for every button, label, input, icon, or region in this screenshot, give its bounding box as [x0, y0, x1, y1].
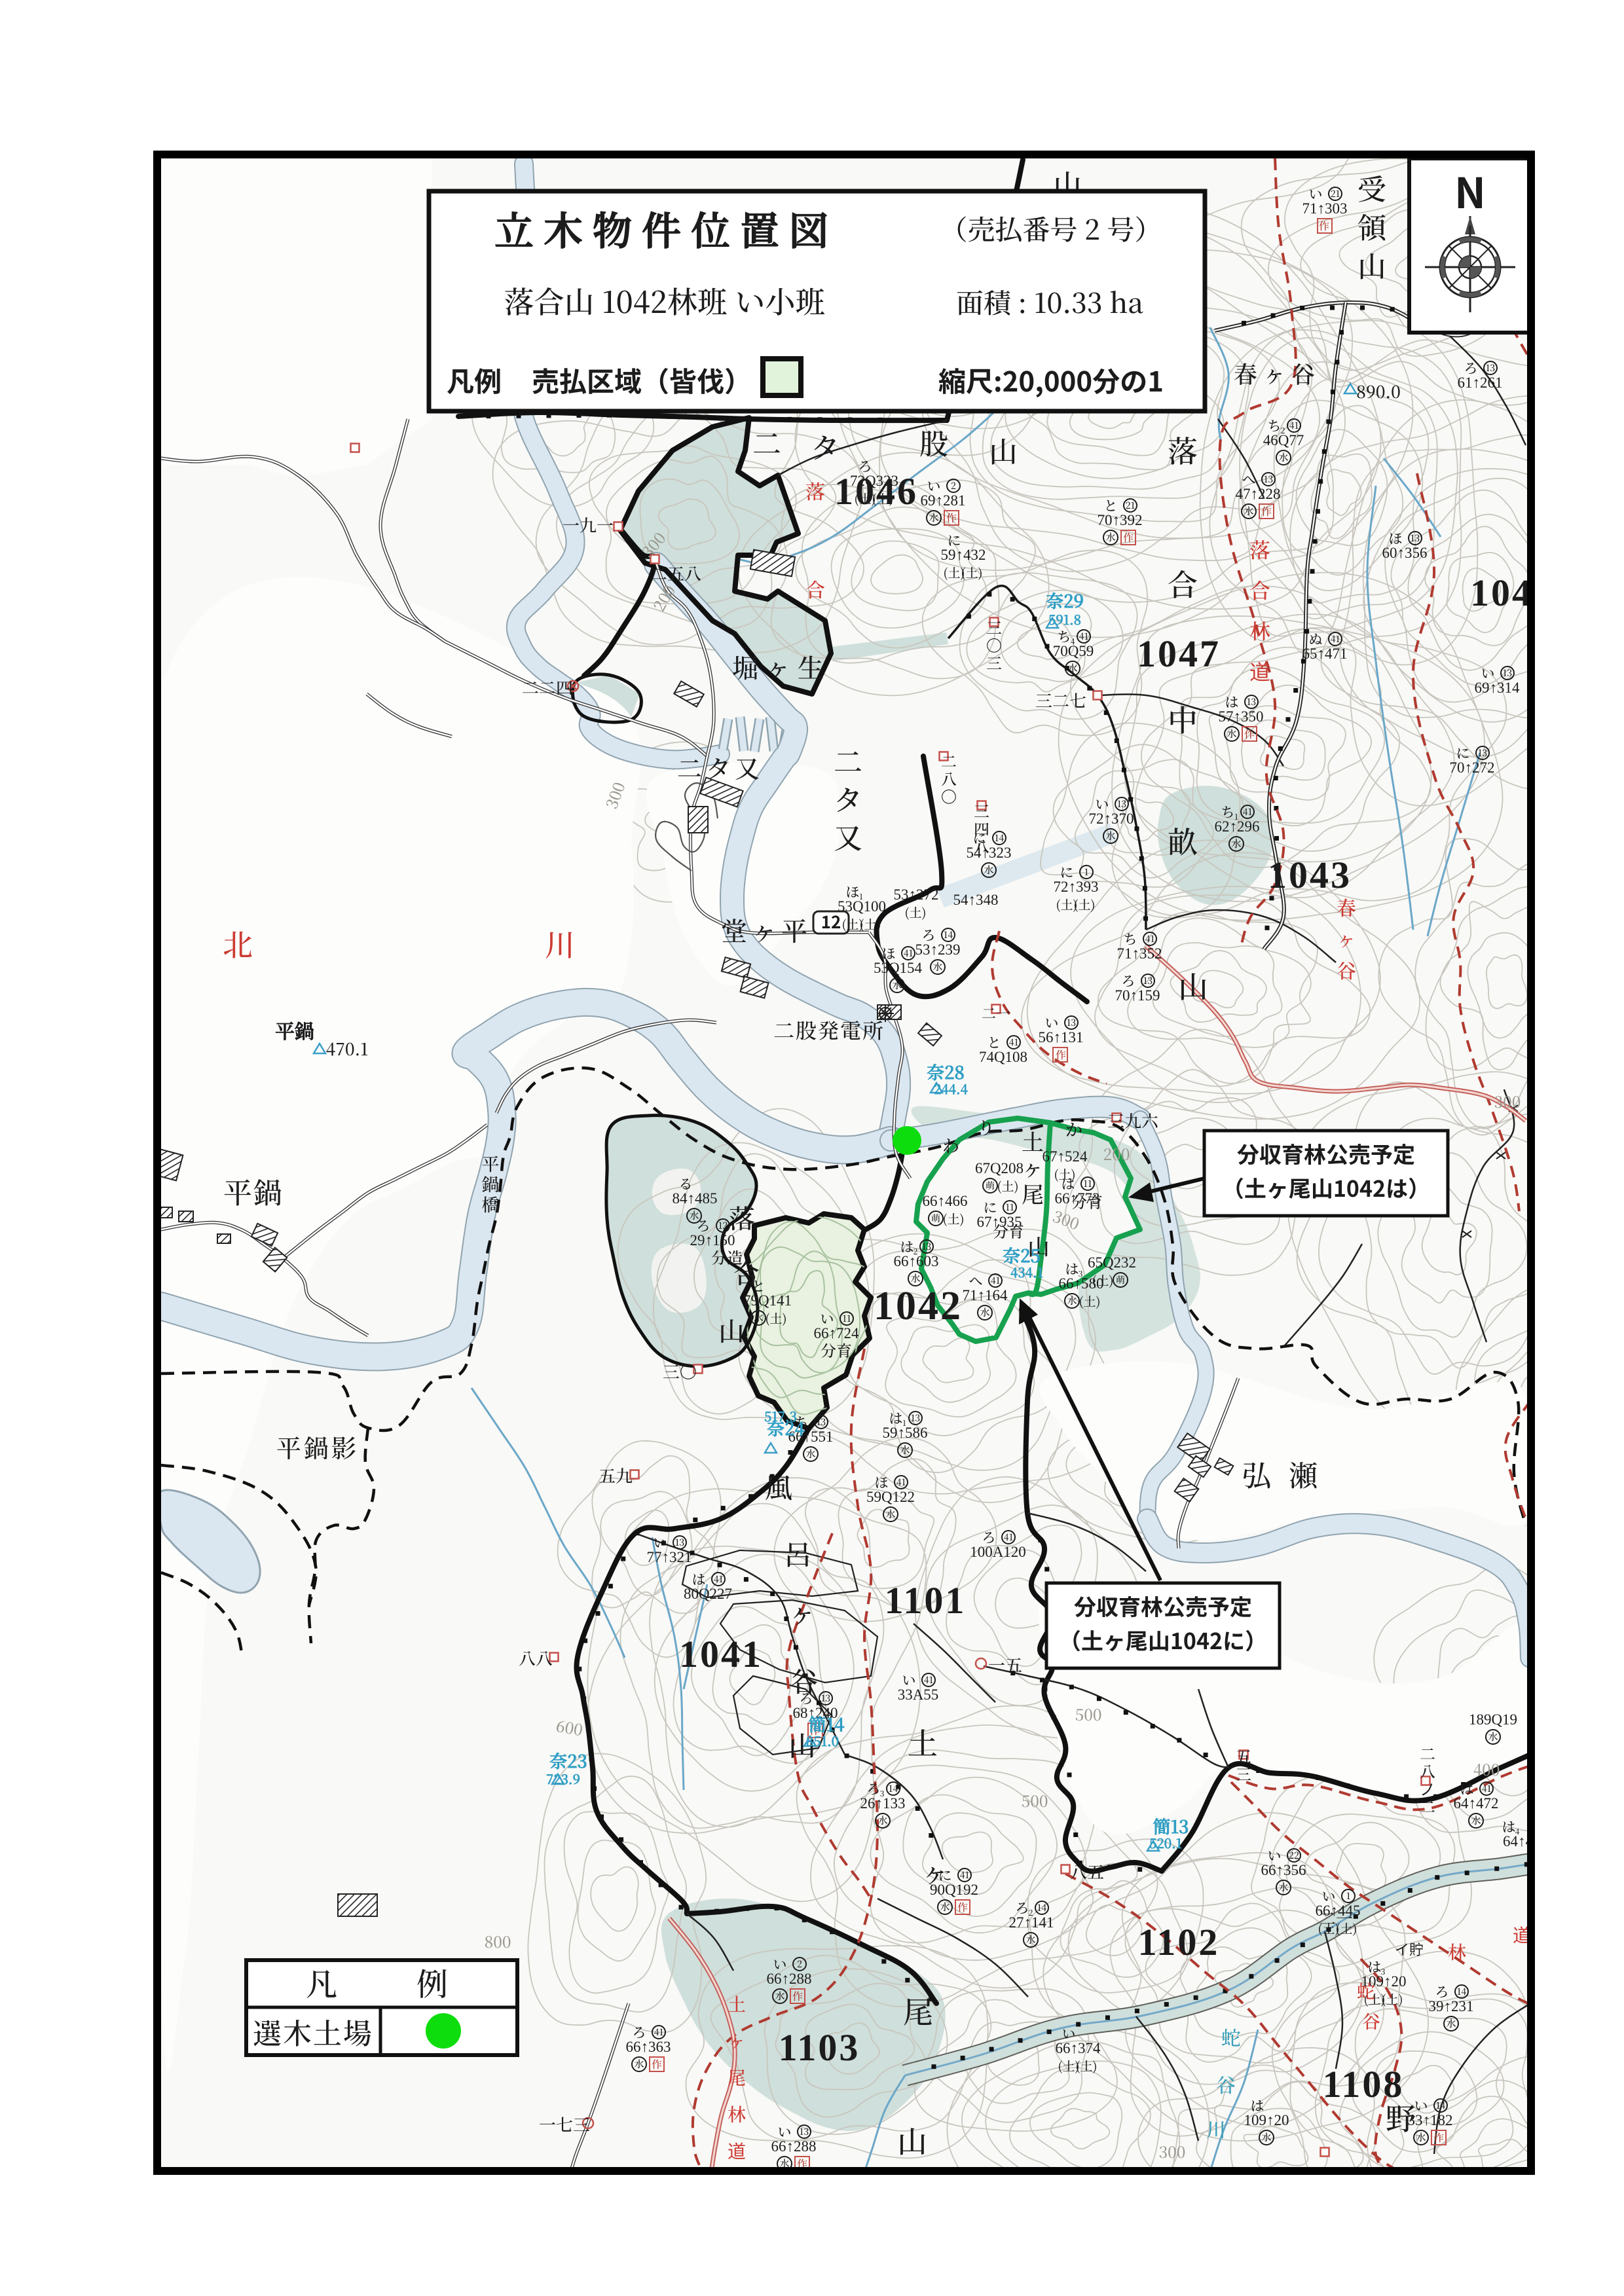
svg-text:か: か: [1065, 1117, 1082, 1141]
svg-text:立 木 物 件 位 置 図: 立 木 物 件 位 置 図: [494, 200, 828, 257]
svg-text:分育: 分育: [1071, 1190, 1103, 1212]
svg-text:71↑352: 71↑352: [1117, 945, 1162, 962]
svg-text:(土): (土): [765, 1309, 786, 1327]
svg-text:作: 作: [1244, 726, 1255, 741]
svg-text:41: 41: [1145, 932, 1155, 945]
svg-text:21: 21: [1126, 499, 1135, 512]
svg-text:1042: 1042: [874, 1284, 963, 1328]
svg-text:一九一: 一九一: [563, 513, 614, 537]
svg-text:三: 三: [1236, 1762, 1251, 1785]
svg-text:14: 14: [995, 831, 1005, 845]
svg-text:土: 土: [908, 1721, 938, 1764]
svg-text:谷: 谷: [1362, 2008, 1380, 2034]
svg-text:72Q323: 72Q323: [850, 473, 898, 489]
svg-text:水: 水: [892, 978, 902, 992]
svg-text:41: 41: [1004, 1531, 1014, 1544]
svg-text:売払区域（皆伐）: 売払区域（皆伐）: [532, 360, 752, 400]
svg-text:500: 500: [1075, 1702, 1102, 1725]
svg-text:イ貯: イ貯: [1395, 1939, 1424, 1959]
svg-text:春ヶ谷: 春ヶ谷: [1234, 357, 1320, 390]
svg-text:（土ヶ尾山1042に）: （土ヶ尾山1042に）: [1059, 1624, 1267, 1656]
svg-text:13: 13: [1503, 666, 1513, 680]
svg-text:〇: 〇: [941, 784, 957, 807]
svg-text:61↑261: 61↑261: [1458, 374, 1503, 391]
svg-text:66↑603: 66↑603: [894, 1253, 939, 1269]
svg-text:189Q19: 189Q19: [1469, 1711, 1517, 1728]
svg-text:65Q232: 65Q232: [1088, 1254, 1136, 1271]
svg-text:水: 水: [1278, 1880, 1288, 1894]
svg-text:三二七: 三二七: [1035, 688, 1086, 712]
svg-text:71↑303: 71↑303: [1302, 200, 1348, 217]
svg-text:平鍋影: 平鍋影: [276, 1429, 359, 1465]
svg-text:水: 水: [984, 863, 993, 877]
svg-text:山: 山: [989, 429, 1018, 471]
svg-text:三〇: 三〇: [663, 1359, 697, 1383]
svg-text:46Q77: 46Q77: [1263, 432, 1304, 448]
svg-text:13: 13: [1117, 797, 1127, 811]
svg-text:水: 水: [932, 960, 942, 974]
svg-text:水: 水: [775, 1989, 784, 2003]
svg-text:水: 水: [900, 1443, 910, 1457]
svg-text:(土): (土): [872, 490, 893, 507]
svg-text:53↑272: 53↑272: [894, 886, 939, 903]
svg-text:13: 13: [1264, 473, 1274, 486]
svg-text:川: 川: [1206, 2114, 1226, 2143]
svg-text:り: り: [978, 1115, 995, 1139]
svg-text:尾: 尾: [1022, 1177, 1044, 1209]
svg-text:13: 13: [1486, 361, 1496, 374]
svg-text:60↑356: 60↑356: [1382, 545, 1428, 561]
svg-text:作: 作: [1261, 503, 1272, 519]
svg-text:二: 二: [752, 421, 781, 463]
svg-text:14: 14: [1457, 1985, 1467, 1998]
svg-text:分造: 分造: [711, 1245, 743, 1268]
svg-text:谷: 谷: [1337, 955, 1356, 984]
svg-text:33↑182: 33↑182: [1408, 2112, 1453, 2128]
svg-text:1: 1: [1346, 1889, 1351, 1903]
svg-text:萌: 萌: [1116, 1273, 1125, 1286]
svg-text:1047: 1047: [1137, 632, 1221, 675]
svg-text:41: 41: [1331, 632, 1340, 646]
svg-text:41: 41: [896, 1476, 906, 1489]
svg-text:作: 作: [1319, 218, 1329, 233]
svg-text:1041: 1041: [679, 1633, 763, 1675]
svg-text:41: 41: [654, 2026, 664, 2039]
svg-text:作: 作: [1433, 2130, 1444, 2145]
svg-text:平: 平: [223, 1170, 252, 1212]
svg-text:作: 作: [1056, 1047, 1066, 1062]
svg-text:41: 41: [1079, 630, 1089, 643]
svg-text:領: 領: [1357, 205, 1387, 247]
svg-text:14: 14: [1436, 2099, 1446, 2112]
svg-text:水: 水: [1067, 661, 1077, 675]
svg-text:13: 13: [1478, 746, 1488, 759]
svg-text:2: 2: [951, 479, 956, 492]
svg-text:二: 二: [834, 739, 862, 781]
svg-text:13: 13: [1143, 974, 1153, 987]
svg-text:水: 水: [1067, 1294, 1077, 1307]
svg-text:13: 13: [821, 1692, 831, 1705]
svg-text:風: 風: [765, 1467, 792, 1506]
svg-text:三: 三: [986, 651, 1002, 674]
svg-text:合: 合: [1168, 562, 1198, 605]
svg-text:66↑363: 66↑363: [626, 2039, 671, 2055]
svg-text:春: 春: [1337, 892, 1356, 921]
svg-text:39↑231: 39↑231: [1429, 1998, 1474, 2014]
svg-text:二股発電所: 二股発電所: [773, 1015, 885, 1045]
svg-text:41: 41: [991, 1274, 1001, 1287]
svg-text:(土): (土): [997, 1177, 1018, 1195]
svg-text:例: 例: [416, 1959, 448, 2005]
svg-text:90Q192: 90Q192: [930, 1882, 978, 1898]
svg-text:水: 水: [877, 1813, 887, 1827]
svg-text:水: 水: [634, 2057, 644, 2071]
svg-text:851.0: 851.0: [806, 1731, 839, 1750]
svg-text:ヶ: ヶ: [788, 1593, 816, 1632]
svg-text:77↑321: 77↑321: [647, 1549, 692, 1565]
svg-text:(土): (土): [942, 1210, 964, 1228]
svg-text:66↑580: 66↑580: [1059, 1275, 1104, 1292]
svg-text:66↑445: 66↑445: [1316, 1903, 1361, 1919]
svg-text:二: 二: [1420, 1795, 1435, 1817]
svg-text:(土): (土): [1079, 1292, 1100, 1310]
svg-text:林: 林: [1249, 615, 1270, 646]
svg-text:59↑432: 59↑432: [941, 547, 986, 563]
svg-text:（売払番号 2 号）: （売払番号 2 号）: [940, 209, 1162, 248]
svg-text:N: N: [1454, 160, 1486, 221]
svg-text:土: 土: [728, 1991, 746, 2017]
svg-text:林: 林: [728, 2101, 746, 2127]
svg-text:三九六: 三九六: [1107, 1108, 1159, 1133]
svg-text:北: 北: [223, 922, 253, 965]
svg-text:13: 13: [911, 1412, 921, 1425]
svg-text:14: 14: [889, 1782, 898, 1795]
svg-text:1101: 1101: [885, 1579, 967, 1622]
svg-text:水: 水: [1025, 1933, 1035, 1946]
svg-text:200: 200: [1103, 1142, 1130, 1165]
svg-text:53Q154: 53Q154: [874, 960, 923, 976]
svg-text:1: 1: [1084, 866, 1089, 879]
svg-text:作: 作: [792, 1988, 803, 2003]
svg-text:水: 水: [1105, 829, 1115, 843]
svg-text:落: 落: [1249, 534, 1270, 564]
svg-text:道: 道: [1249, 656, 1270, 686]
svg-text:水: 水: [1261, 2130, 1271, 2144]
svg-text:470.1: 470.1: [326, 1036, 369, 1061]
svg-text:13: 13: [800, 2125, 809, 2138]
svg-text:1043: 1043: [1268, 854, 1352, 896]
svg-text:66↑374: 66↑374: [1056, 2040, 1101, 2056]
svg-text:水: 水: [885, 1507, 895, 1521]
svg-text:合: 合: [1249, 575, 1270, 605]
svg-text:22: 22: [1289, 1849, 1299, 1862]
svg-text:水: 水: [1416, 2130, 1426, 2144]
svg-text:ヶ: ヶ: [1337, 924, 1356, 953]
svg-text:400: 400: [1473, 1757, 1500, 1780]
svg-text:41: 41: [1289, 419, 1299, 432]
svg-text:作: 作: [1123, 530, 1134, 545]
svg-text:70Q59: 70Q59: [1053, 643, 1094, 659]
svg-text:71↑164: 71↑164: [963, 1287, 1008, 1303]
svg-text:谷: 谷: [1216, 2069, 1236, 2098]
svg-text:723.9: 723.9: [546, 1769, 580, 1788]
svg-text:41: 41: [960, 1868, 970, 1882]
svg-text:作: 作: [946, 510, 957, 525]
svg-text:74Q108: 74Q108: [979, 1049, 1027, 1065]
svg-text:鍋: 鍋: [253, 1170, 282, 1212]
svg-text:萌: 萌: [931, 1212, 940, 1225]
svg-text:水: 水: [1278, 450, 1288, 464]
svg-text:水: 水: [753, 1311, 763, 1324]
svg-text:五九: 五九: [599, 1463, 633, 1487]
svg-text:80Q227: 80Q227: [684, 1586, 732, 1602]
svg-text:水: 水: [1231, 837, 1241, 850]
svg-text:水: 水: [1446, 2016, 1456, 2030]
svg-text:591.8: 591.8: [1048, 610, 1081, 629]
svg-text:11: 11: [1083, 1177, 1092, 1190]
svg-text:橋: 橋: [482, 1191, 500, 1216]
svg-text:70↑159: 70↑159: [1115, 987, 1160, 1004]
svg-text:65↑471: 65↑471: [1302, 646, 1348, 662]
svg-text:54↑323: 54↑323: [967, 845, 1012, 861]
svg-text:タ: タ: [834, 777, 862, 819]
svg-text:水: 水: [805, 1447, 815, 1461]
svg-text:(土): (土): [859, 915, 881, 933]
svg-text:72↑393: 72↑393: [1054, 879, 1099, 895]
svg-text:434.1: 434.1: [1010, 1262, 1043, 1281]
svg-text:13: 13: [1247, 695, 1257, 708]
svg-text:13: 13: [817, 1415, 826, 1429]
svg-text:落: 落: [729, 1199, 755, 1236]
svg-text:(土): (土): [1073, 896, 1095, 913]
svg-text:山: 山: [1357, 244, 1386, 285]
svg-text:41: 41: [1243, 805, 1253, 818]
svg-text:瀬: 瀬: [1289, 1453, 1319, 1495]
svg-text:凡例: 凡例: [447, 360, 502, 400]
svg-text:70↑272: 70↑272: [1450, 759, 1495, 776]
svg-text:（土ヶ尾山1042は）: （土ヶ尾山1042は）: [1222, 1171, 1430, 1203]
svg-text:13: 13: [1067, 1016, 1077, 1029]
svg-text:分収育林公売予定: 分収育林公売予定: [1074, 1590, 1252, 1622]
svg-text:27↑141: 27↑141: [1009, 1914, 1054, 1931]
svg-text:落合山 1042林班 い小班: 落合山 1042林班 い小班: [504, 279, 826, 322]
svg-text:69↑281: 69↑281: [921, 492, 966, 509]
svg-text:道: 道: [728, 2138, 746, 2164]
svg-text:57↑350: 57↑350: [1219, 708, 1264, 725]
svg-text:70↑392: 70↑392: [1098, 512, 1143, 528]
svg-text:萌: 萌: [986, 1179, 995, 1192]
svg-text:890.0: 890.0: [1356, 379, 1401, 403]
svg-text:蛇: 蛇: [1221, 2022, 1241, 2051]
svg-text:(土): (土): [961, 564, 982, 581]
svg-text:平鍋: 平鍋: [275, 1015, 314, 1044]
svg-text:中: 中: [1168, 697, 1198, 740]
svg-text:59↑586: 59↑586: [883, 1425, 928, 1441]
svg-text:300: 300: [1494, 1089, 1521, 1112]
svg-text:ヶ: ヶ: [728, 2028, 746, 2054]
svg-text:林: 林: [1448, 1939, 1466, 1965]
svg-text:300: 300: [1159, 2140, 1186, 2162]
svg-text:59Q122: 59Q122: [866, 1489, 915, 1505]
svg-text:517.3: 517.3: [764, 1406, 797, 1425]
svg-text:54↑348: 54↑348: [953, 892, 999, 908]
svg-text:64↑472: 64↑472: [1454, 1795, 1499, 1812]
svg-text:股: 股: [919, 421, 948, 463]
svg-text:凡: 凡: [306, 1959, 337, 2005]
svg-text:二一: 二一: [982, 1003, 1010, 1023]
svg-text:呂: 呂: [784, 1534, 811, 1573]
svg-text:800: 800: [485, 1929, 511, 1952]
svg-text:41: 41: [904, 947, 913, 960]
svg-text:落: 落: [1168, 428, 1198, 471]
svg-text:水: 水: [980, 1305, 989, 1319]
svg-text:水: 水: [910, 1271, 920, 1285]
svg-text:作: 作: [652, 2056, 662, 2071]
svg-text:一五: 一五: [988, 1652, 1022, 1677]
svg-text:67Q208: 67Q208: [975, 1160, 1024, 1176]
svg-text:21: 21: [1331, 187, 1340, 200]
svg-text:11: 11: [842, 1312, 851, 1325]
svg-text:100A120: 100A120: [970, 1544, 1026, 1560]
svg-text:面積 : 10.33 ha: 面積 : 10.33 ha: [956, 282, 1143, 321]
svg-text:分収育林公売予定: 分収育林公売予定: [1237, 1137, 1415, 1169]
svg-text:水: 水: [1105, 530, 1115, 544]
svg-text:104: 104: [1470, 572, 1533, 614]
svg-text:14: 14: [944, 928, 953, 941]
svg-text:水: 水: [1488, 1730, 1498, 1743]
svg-text:分育: 分育: [993, 1219, 1024, 1242]
svg-text:作: 作: [957, 1899, 968, 1914]
svg-text:13: 13: [675, 1536, 685, 1549]
svg-text:合: 合: [805, 574, 825, 603]
svg-text:又: 又: [834, 815, 862, 857]
svg-text:56↑131: 56↑131: [1039, 1029, 1084, 1046]
svg-text:66↑288: 66↑288: [767, 1971, 812, 1987]
svg-text:2: 2: [797, 1958, 802, 1971]
svg-text:66↑356: 66↑356: [1261, 1862, 1306, 1878]
svg-text:53Q100: 53Q100: [838, 898, 886, 915]
svg-text:二タ又: 二タ又: [677, 749, 764, 785]
svg-text:41: 41: [1482, 1782, 1492, 1795]
svg-text:選木土場: 選木土場: [253, 2011, 373, 2052]
svg-text:わ: わ: [942, 1133, 959, 1157]
svg-text:13: 13: [1411, 532, 1420, 545]
svg-text:66↑466: 66↑466: [923, 1193, 968, 1209]
svg-text:山: 山: [1178, 964, 1208, 1007]
svg-text:13: 13: [922, 1240, 932, 1253]
svg-text:520.1: 520.1: [1149, 1833, 1182, 1852]
svg-text:1103: 1103: [779, 2026, 860, 2069]
svg-text:堂ヶ平: 堂ヶ平: [721, 911, 811, 949]
svg-text:14: 14: [1037, 1901, 1047, 1914]
svg-text:八八: 八八: [519, 1646, 553, 1670]
svg-text:尾: 尾: [903, 1989, 933, 2032]
svg-text:600: 600: [555, 1713, 585, 1741]
svg-text:41: 41: [1009, 1036, 1019, 1049]
svg-text:弘: 弘: [1242, 1453, 1273, 1495]
svg-text:分育: 分育: [821, 1338, 852, 1361]
svg-text:69↑314: 69↑314: [1475, 680, 1521, 696]
svg-text:109↑20: 109↑20: [1244, 2112, 1289, 2128]
svg-text:堀ヶ生: 堀ヶ生: [732, 648, 830, 685]
svg-text:41: 41: [714, 1573, 724, 1586]
svg-text:受: 受: [1357, 166, 1386, 208]
svg-text:12: 12: [718, 1219, 728, 1232]
svg-text:47↑228: 47↑228: [1236, 486, 1281, 502]
svg-text:26↑133: 26↑133: [860, 1795, 906, 1812]
svg-text:(土): (土): [1335, 1920, 1357, 1937]
svg-text:66↑288: 66↑288: [771, 2138, 817, 2155]
svg-text:蛇: 蛇: [1357, 1978, 1375, 2004]
svg-text:(土): (土): [904, 903, 926, 921]
svg-text:84↑485: 84↑485: [673, 1190, 718, 1207]
svg-text:33A55: 33A55: [898, 1686, 939, 1703]
svg-text:水: 水: [940, 1900, 950, 1914]
svg-text:二五八: 二五八: [650, 561, 701, 585]
svg-text:タ: タ: [811, 425, 840, 467]
svg-text:二二四: 二二四: [522, 675, 573, 699]
svg-text:(土): (土): [1381, 1990, 1403, 2008]
svg-text:水: 水: [1471, 1813, 1481, 1827]
svg-text:山: 山: [897, 2119, 927, 2162]
svg-text:62↑296: 62↑296: [1215, 818, 1260, 835]
svg-text:244.4: 244.4: [934, 1079, 969, 1098]
svg-text:八五: 八五: [1070, 1859, 1104, 1884]
svg-text:一七三: 一七三: [539, 2112, 590, 2136]
svg-text:山: 山: [718, 1311, 745, 1349]
svg-text:畝: 畝: [1168, 819, 1198, 862]
svg-text:水: 水: [929, 511, 938, 524]
svg-text:67↑524: 67↑524: [1043, 1148, 1088, 1165]
svg-text:72↑370: 72↑370: [1089, 811, 1134, 827]
svg-text:79Q141: 79Q141: [743, 1292, 792, 1309]
svg-text:11: 11: [1005, 1201, 1014, 1214]
svg-text:尾: 尾: [728, 2064, 746, 2090]
svg-text:1102: 1102: [1138, 1921, 1220, 1963]
svg-text:落: 落: [805, 476, 825, 505]
svg-text:水: 水: [1227, 727, 1236, 740]
svg-text:53↑239: 53↑239: [915, 941, 961, 958]
svg-text:41: 41: [924, 1673, 934, 1686]
svg-text:川: 川: [545, 922, 575, 965]
svg-text:500: 500: [1022, 1789, 1048, 1812]
svg-text:(土): (土): [1075, 2057, 1097, 2075]
svg-text:水: 水: [1244, 504, 1253, 518]
svg-text:縮尺:20,000分の1: 縮尺:20,000分の1: [938, 360, 1164, 400]
